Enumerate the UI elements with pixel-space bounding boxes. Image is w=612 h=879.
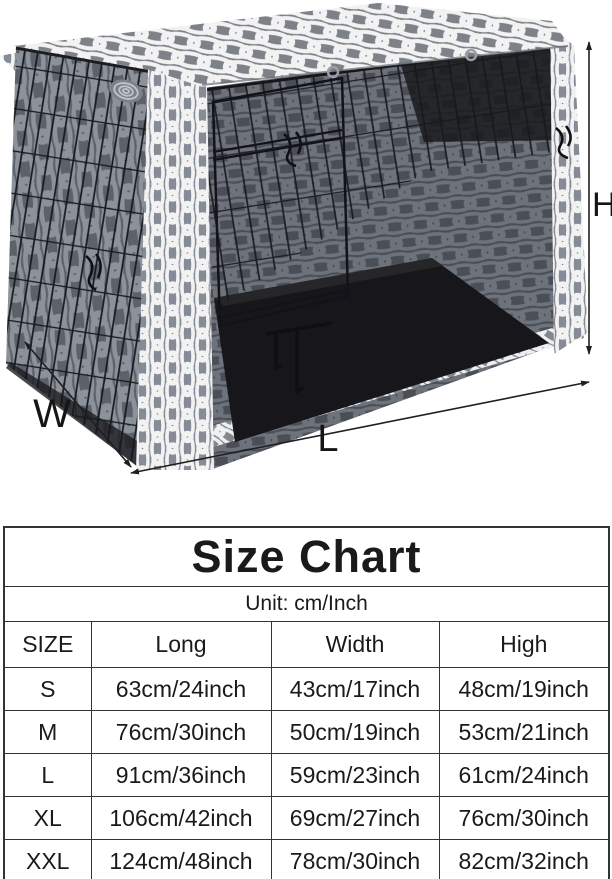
table-row: L 91cm/36inch 59cm/23inch 61cm/24inch xyxy=(4,754,609,797)
long-cell: 76cm/30inch xyxy=(91,711,271,754)
size-chart-title-row: Size Chart xyxy=(4,527,609,587)
size-cell: L xyxy=(4,754,91,797)
long-cell: 106cm/42inch xyxy=(91,797,271,840)
cover-corner-strip xyxy=(136,68,214,470)
high-cell: 61cm/24inch xyxy=(439,754,609,797)
product-infographic: H W L Size Chart Unit: cm/Inch SIZE Long… xyxy=(0,0,612,879)
width-cell: 50cm/19inch xyxy=(271,711,439,754)
crate-figure: H W L xyxy=(0,0,612,515)
width-cell: 78cm/30inch xyxy=(271,840,439,879)
size-chart-table: Size Chart Unit: cm/Inch SIZE Long Width… xyxy=(3,526,610,879)
size-cell: XL xyxy=(4,797,91,840)
column-header-high: High xyxy=(439,622,609,668)
high-cell: 82cm/32inch xyxy=(439,840,609,879)
cover-right-strip xyxy=(550,24,588,354)
size-cell: M xyxy=(4,711,91,754)
crate-figure-illustration: H W L xyxy=(0,0,612,515)
table-row: XL 106cm/42inch 69cm/27inch 76cm/30inch xyxy=(4,797,609,840)
column-header-width: Width xyxy=(271,622,439,668)
long-cell: 91cm/36inch xyxy=(91,754,271,797)
size-chart-unit-row: Unit: cm/Inch xyxy=(4,587,609,622)
table-row: S 63cm/24inch 43cm/17inch 48cm/19inch xyxy=(4,668,609,711)
size-chart-header-row: SIZE Long Width High xyxy=(4,622,609,668)
size-chart-title: Size Chart xyxy=(4,527,609,587)
long-cell: 124cm/48inch xyxy=(91,840,271,879)
high-cell: 53cm/21inch xyxy=(439,711,609,754)
width-dimension-label: W xyxy=(33,392,71,436)
width-cell: 59cm/23inch xyxy=(271,754,439,797)
column-header-size: SIZE xyxy=(4,622,91,668)
width-cell: 43cm/17inch xyxy=(271,668,439,711)
height-dimension-label: H xyxy=(592,186,612,224)
size-cell: XXL xyxy=(4,840,91,879)
column-header-long: Long xyxy=(91,622,271,668)
size-chart-unit-label: Unit: cm/Inch xyxy=(4,587,609,622)
high-cell: 76cm/30inch xyxy=(439,797,609,840)
size-cell: S xyxy=(4,668,91,711)
high-cell: 48cm/19inch xyxy=(439,668,609,711)
long-cell: 63cm/24inch xyxy=(91,668,271,711)
width-cell: 69cm/27inch xyxy=(271,797,439,840)
length-dimension-label: L xyxy=(317,418,338,460)
table-row: XXL 124cm/48inch 78cm/30inch 82cm/32inch xyxy=(4,840,609,879)
table-row: M 76cm/30inch 50cm/19inch 53cm/21inch xyxy=(4,711,609,754)
